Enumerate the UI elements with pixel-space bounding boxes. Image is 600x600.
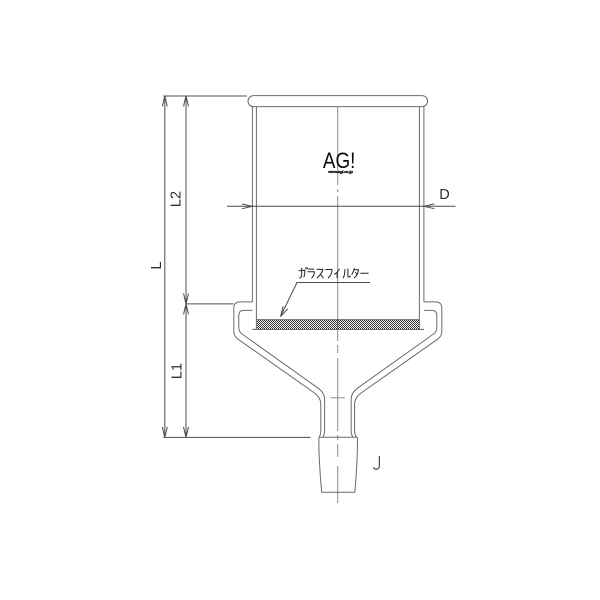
svg-text:L2: L2 <box>169 191 185 207</box>
svg-text:www.agi.co.jp: www.agi.co.jp <box>327 169 353 174</box>
svg-text:L: L <box>149 261 165 269</box>
svg-text:D: D <box>439 187 449 203</box>
svg-text:L1: L1 <box>170 363 186 379</box>
